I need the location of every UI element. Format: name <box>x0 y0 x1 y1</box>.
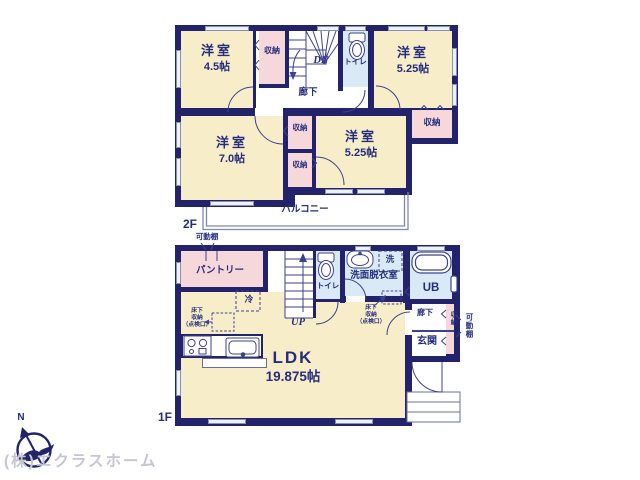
uf-line1: 床下 <box>191 308 203 314</box>
watermark-text: (株)エクラスホーム <box>4 449 158 471</box>
f2-door-gap-room70 <box>255 108 283 116</box>
f2-hallway-label: 廊下 <box>287 88 329 99</box>
f1-washroom-door-gap <box>346 296 365 302</box>
f2-room45-size: 4.5帖 <box>183 61 251 73</box>
f1-underfloor-kitchen-label: 床下 収納 （点検口） <box>182 308 212 330</box>
f2-window <box>427 26 450 31</box>
f2-closet-1 <box>259 31 285 84</box>
f1-window <box>335 419 373 424</box>
f1-up-label: UP <box>283 317 313 329</box>
f2-room70-name: 洋室 <box>181 136 283 151</box>
north-arrow-icon <box>20 427 29 438</box>
f1-ldk-size: 19.875帖 <box>233 369 353 384</box>
f1-floor-label: 1F <box>152 411 178 424</box>
f1-underfloor-hall-label: 床下 収納 （点検口） <box>356 305 386 327</box>
f2-closet1-wall-right <box>285 31 289 88</box>
f2-closet4-label: 収納 <box>412 118 452 128</box>
f2-window <box>176 50 181 88</box>
f1-entrance-closet <box>446 332 454 354</box>
f1-ub-label: UB <box>415 282 447 295</box>
f2-toilet-label: トイレ <box>340 58 371 66</box>
f1-stairs <box>285 251 313 318</box>
f2-window <box>452 84 457 106</box>
f1-pantry-label: パントリー <box>188 266 252 277</box>
f2-closet-2 <box>288 116 312 149</box>
f2-balcony-label: バルコニー <box>268 205 342 216</box>
f1-window <box>417 246 445 251</box>
f1-pantry-wall-bottom <box>175 287 268 292</box>
f1-ldk-name: LDK <box>238 348 348 367</box>
f1-entrance-label: 玄関 <box>410 336 444 347</box>
f2-room525mid-size: 5.25帖 <box>316 147 406 159</box>
f2-closet1-wall-bottom <box>259 84 285 88</box>
f2-closet-3 <box>288 153 312 187</box>
f2-window <box>357 189 385 194</box>
f1-hall-closet-label: 収納 <box>445 306 455 330</box>
compass-north-label: N <box>14 412 28 423</box>
f2-window <box>317 26 339 31</box>
f1-window <box>355 246 371 251</box>
f2-room525mid-name: 洋室 <box>316 130 406 145</box>
f1-washer-label: 洗 <box>381 255 399 265</box>
f1-stair-landing <box>268 251 285 292</box>
f1-washroom-label: 洗面脱衣室 <box>342 271 406 282</box>
uf-line2: 収納 <box>365 312 377 318</box>
f1-fridge-label: 冷 <box>240 295 258 305</box>
f1-window <box>176 262 181 284</box>
uf-line3: （点検口） <box>357 319 386 325</box>
uf-line2: 収納 <box>191 315 203 321</box>
f1-shelf-pantry-label: 可動棚 <box>190 233 224 241</box>
f1-window <box>208 419 246 424</box>
f2-room525top-size: 5.25帖 <box>374 63 452 75</box>
f2-room70-size: 7.0帖 <box>181 153 283 165</box>
f1-shelf-right-label: 可動棚 <box>462 307 473 345</box>
f2-window <box>205 26 249 31</box>
f1-hallway-label: 廊下 <box>410 309 440 318</box>
f1-toilet-room <box>316 251 340 299</box>
entrance-porch <box>407 362 460 422</box>
f2-room45-name: 洋室 <box>183 44 251 59</box>
f2-dn-label: DN <box>306 55 336 67</box>
f1-toilet-label: トイレ <box>313 282 343 290</box>
uf-line3: （点検口） <box>183 322 212 328</box>
f2-window <box>210 201 254 206</box>
f2-window <box>345 26 366 31</box>
f2-floor-label: 2F <box>177 218 203 231</box>
f1-toilet-wall-bottom <box>316 299 340 302</box>
f2-window <box>452 48 457 76</box>
f1-window <box>176 370 181 396</box>
f2-closet1-label: 収納 <box>258 47 286 56</box>
floorplan-canvas: 洋室 4.5帖 収納 DN トイレ 洋室 5.25帖 廊下 洋室 7.0帖 収納… <box>0 0 640 480</box>
f2-window <box>388 26 425 31</box>
f2-closet2-label: 収納 <box>288 124 312 132</box>
uf-line1: 床下 <box>365 305 377 311</box>
f2-window <box>325 189 353 194</box>
f2-room525top-name: 洋室 <box>374 46 452 61</box>
f2-closet3-label: 収納 <box>288 161 312 169</box>
